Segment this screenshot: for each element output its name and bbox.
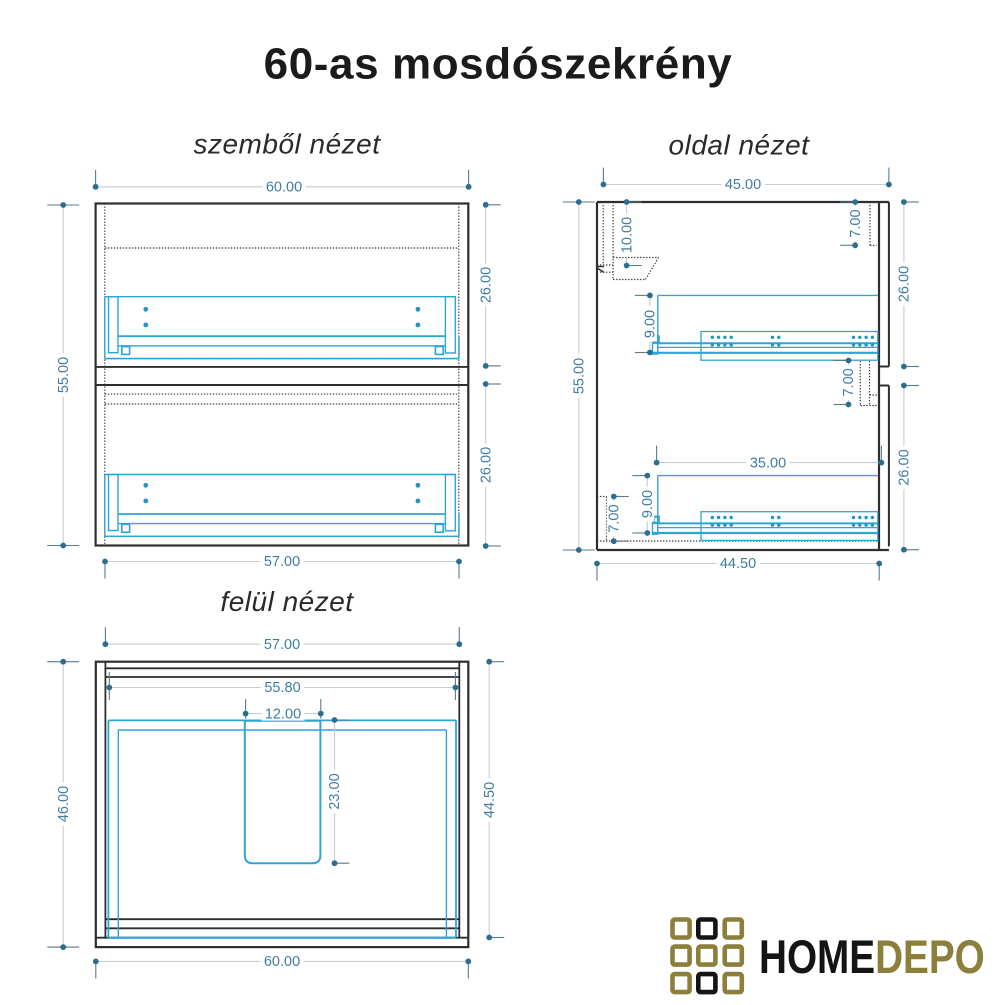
svg-text:55.00: 55.00 — [572, 358, 588, 394]
svg-text:60-as mosdószekrény: 60-as mosdószekrény — [264, 40, 733, 89]
svg-text:szemből nézet: szemből nézet — [193, 129, 381, 160]
svg-text:12.00: 12.00 — [265, 706, 301, 722]
svg-text:26.00: 26.00 — [897, 449, 913, 485]
svg-text:HOMEDEPO: HOMEDEPO — [759, 931, 985, 984]
svg-text:45.00: 45.00 — [725, 177, 761, 193]
svg-text:57.00: 57.00 — [264, 637, 300, 653]
svg-text:44.50: 44.50 — [482, 782, 498, 818]
svg-text:felül nézet: felül nézet — [220, 586, 354, 617]
svg-text:7.00: 7.00 — [841, 368, 857, 396]
svg-text:9.00: 9.00 — [643, 310, 659, 338]
svg-text:60.00: 60.00 — [264, 954, 300, 970]
svg-text:57.00: 57.00 — [264, 554, 300, 570]
svg-text:9.00: 9.00 — [640, 490, 656, 518]
svg-text:44.50: 44.50 — [720, 556, 756, 572]
svg-text:7.00: 7.00 — [607, 504, 623, 532]
svg-text:35.00: 35.00 — [750, 455, 786, 471]
svg-text:46.00: 46.00 — [56, 786, 72, 822]
svg-text:oldal nézet: oldal nézet — [669, 130, 811, 161]
svg-text:26.00: 26.00 — [478, 267, 494, 303]
svg-text:55.80: 55.80 — [264, 680, 300, 696]
svg-text:23.00: 23.00 — [327, 773, 343, 809]
svg-text:26.00: 26.00 — [897, 266, 913, 302]
svg-text:26.00: 26.00 — [478, 447, 494, 483]
svg-text:10.00: 10.00 — [619, 217, 635, 253]
svg-text:7.00: 7.00 — [848, 209, 864, 237]
svg-text:60.00: 60.00 — [266, 180, 302, 196]
svg-text:55.00: 55.00 — [56, 357, 72, 393]
